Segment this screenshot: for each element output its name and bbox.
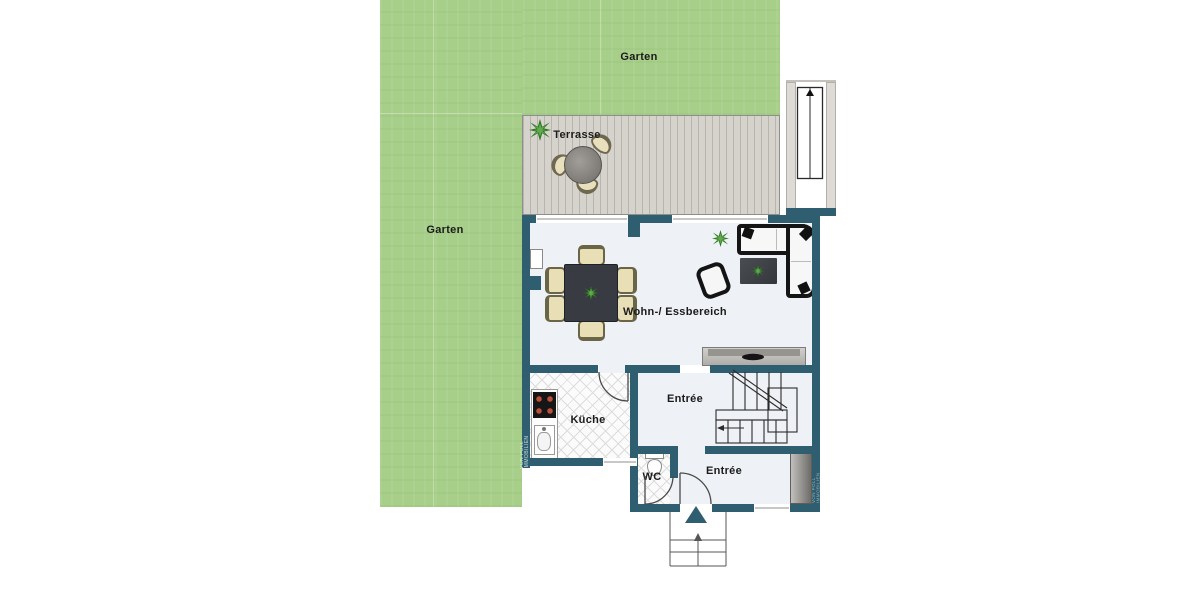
- wall-segment: [712, 504, 754, 512]
- dining-chair: [545, 295, 566, 322]
- window: [536, 215, 628, 223]
- sink-basin: [537, 432, 551, 451]
- garden-seam-line: [380, 113, 522, 114]
- window: [603, 458, 637, 466]
- wall-segment: [630, 504, 680, 512]
- wall-segment: [522, 458, 603, 466]
- sink-faucet: [542, 427, 546, 431]
- wall-segment: [670, 446, 678, 478]
- garden-top-label: Garten: [620, 51, 657, 63]
- living-dining-label: Wohn-/ Essbereich: [623, 306, 727, 318]
- sideboard-top-band: [708, 349, 800, 356]
- window: [754, 504, 790, 512]
- walkway-side-wall: [786, 82, 796, 210]
- terrace-table: [564, 146, 602, 184]
- wall-segment: [630, 365, 638, 450]
- walkway-side-wall: [826, 82, 836, 210]
- wall-segment: [630, 446, 638, 512]
- plant-icon: [752, 265, 764, 277]
- hall-passage-opening: [677, 446, 705, 454]
- wardrobe: [790, 452, 812, 504]
- wall-segment: [705, 446, 820, 454]
- garden-area-left: [380, 0, 522, 507]
- hall-lower-label: Entrée: [706, 465, 742, 477]
- kitchen-label: Küche: [570, 414, 605, 426]
- hall-upper-label: Entrée: [667, 393, 703, 405]
- garden-seam-line: [600, 0, 601, 114]
- garden-seam-line: [433, 0, 434, 507]
- plant-icon: [712, 230, 729, 247]
- wall-segment: [786, 208, 836, 216]
- walkway-detail: [798, 88, 823, 179]
- dining-chair: [616, 267, 637, 294]
- dining-chair: [578, 320, 605, 341]
- sofa-cushion-seam: [776, 229, 777, 250]
- terrace-door-window: [672, 215, 768, 223]
- terrace-label: Terrasse: [553, 129, 600, 141]
- watermark: VON POLL IMMOBILIEN: [812, 453, 821, 503]
- wall-stub: [530, 276, 541, 290]
- plant-icon: [529, 119, 551, 141]
- garden-left-label: Garten: [426, 224, 463, 236]
- wall-segment: [710, 365, 812, 373]
- dining-chair: [545, 267, 566, 294]
- dining-chair: [578, 245, 605, 266]
- steps-direction-arrow: [694, 533, 702, 541]
- plant-icon: [584, 286, 598, 300]
- sofa-cushion-seam: [791, 261, 811, 262]
- wall-segment: [522, 365, 598, 373]
- radiator: [530, 249, 543, 269]
- watermark: VON POLL IMMOBILIEN: [520, 407, 530, 469]
- cooktop: [533, 392, 556, 418]
- wall-segment: [628, 215, 672, 223]
- entrance-arrow: [685, 506, 707, 523]
- wall-segment: [790, 504, 820, 512]
- kitchen-door-opening: [599, 365, 625, 373]
- wall-stub: [628, 223, 640, 237]
- floor-plan: VON POLL IMMOBILIEN VON POLL IMMOBILIEN …: [0, 0, 1200, 600]
- wc-label: WC: [643, 471, 662, 483]
